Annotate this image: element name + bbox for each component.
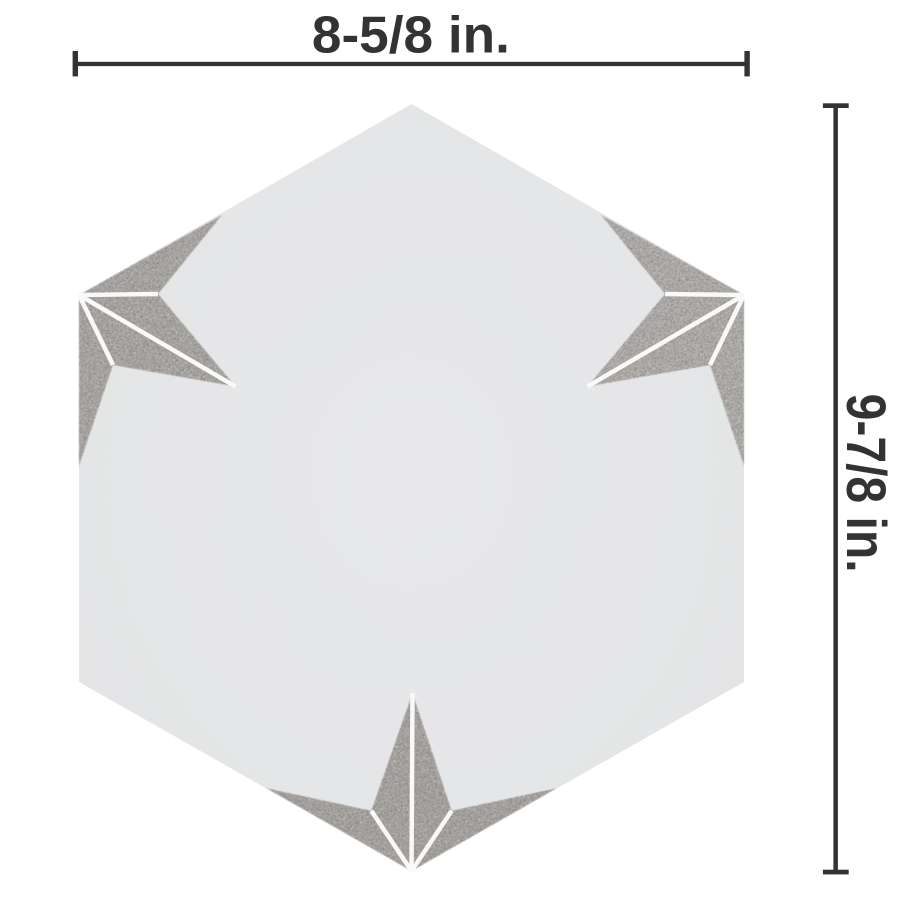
svg-text:9-7/8 in.: 9-7/8 in. bbox=[835, 394, 898, 573]
svg-text:8-5/8 in.: 8-5/8 in. bbox=[312, 7, 510, 65]
